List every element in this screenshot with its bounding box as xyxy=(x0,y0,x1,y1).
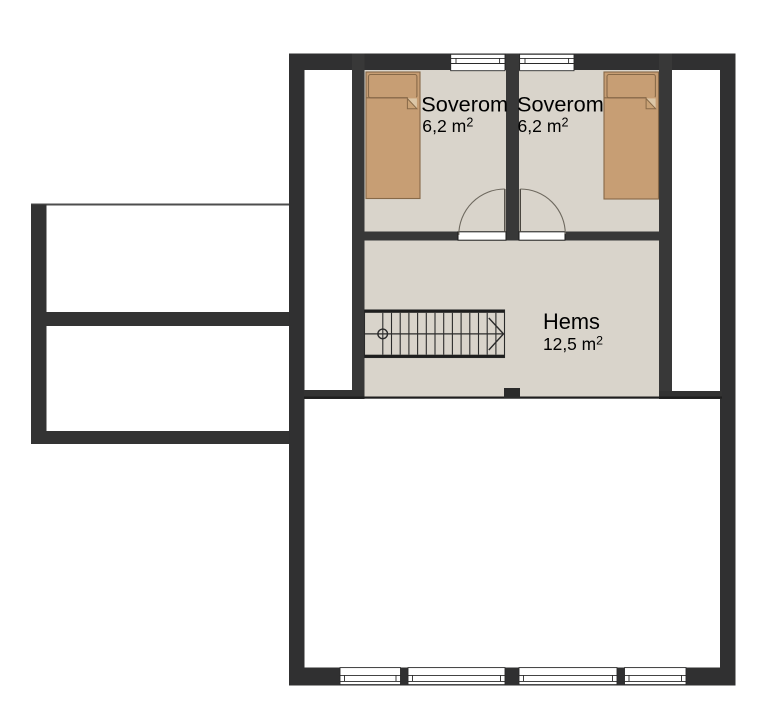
svg-text:12,5 m2: 12,5 m2 xyxy=(543,333,603,354)
svg-text:Soverom: Soverom xyxy=(421,92,508,117)
svg-text:6,2 m2: 6,2 m2 xyxy=(518,115,569,136)
svg-text:Hems: Hems xyxy=(543,309,600,334)
svg-text:6,2 m2: 6,2 m2 xyxy=(422,115,473,136)
svg-text:Soverom: Soverom xyxy=(517,92,604,117)
